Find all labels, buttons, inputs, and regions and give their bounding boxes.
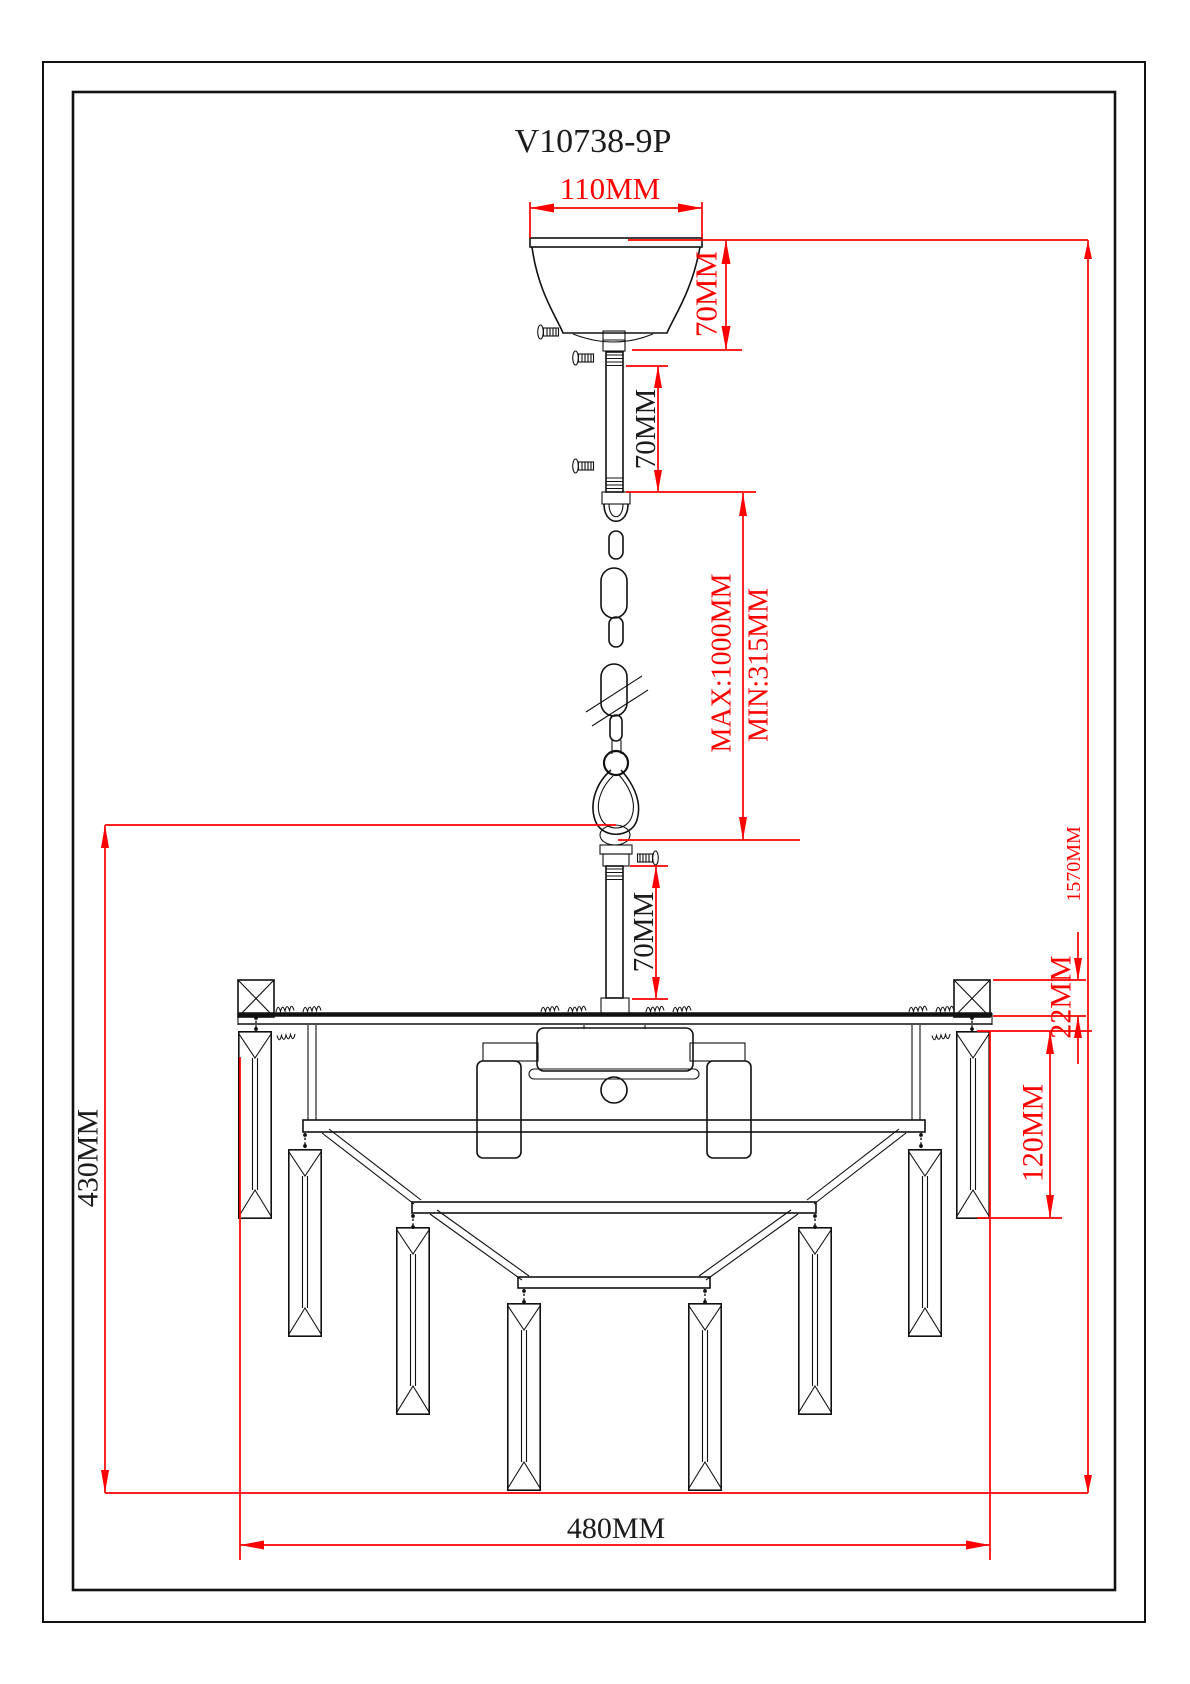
crystal-prism (957, 1032, 989, 1218)
crystal-cube-bead (238, 980, 274, 1017)
screw-icon (638, 851, 659, 865)
dim-canopy-width: 110MM (530, 171, 702, 238)
center-body-box (537, 1028, 693, 1071)
inner-border (73, 92, 1115, 1590)
canopy-neck (603, 331, 625, 351)
chain-link (610, 715, 622, 741)
canopy-bottom-arc (573, 334, 653, 342)
crystal-prism (289, 1150, 321, 1336)
chandelier-dimension-diagram: V10738-9P (0, 0, 1190, 1684)
socket-cap (483, 1043, 538, 1061)
screw-icon (573, 351, 594, 365)
tier-2-ring (303, 1120, 925, 1132)
crystal-prism (799, 1228, 831, 1414)
dim-chain-length: MAX:1000MM MIN:315MM (707, 493, 775, 840)
dim-label-bead-height: 22MM (1045, 955, 1078, 1038)
screw-icon (573, 459, 594, 473)
chain-link (609, 617, 623, 647)
bead-connector (919, 1133, 923, 1148)
lamp-assembly (477, 1028, 751, 1158)
crystal-prism (508, 1304, 540, 1490)
chain-link (601, 568, 627, 618)
dim-label-chain-min: MIN:315MM (744, 588, 775, 742)
clip-icon (277, 1034, 295, 1040)
clip-icon (276, 1006, 294, 1012)
hook-ring (604, 751, 628, 775)
dimensions: 110MM 1570MM 70MM 70MM (72, 171, 1093, 1560)
dim-crystal-length: 120MM (977, 1031, 1092, 1218)
tier-3-ring (412, 1202, 816, 1213)
screw-icon (538, 325, 559, 339)
crystal-prism (239, 1032, 271, 1218)
dim-body-width: 480MM (240, 1032, 990, 1560)
lamp-socket-tube (477, 1061, 521, 1158)
chain-link (601, 664, 627, 716)
upper-pipe (606, 352, 623, 492)
hook (593, 751, 639, 845)
clip-icon (932, 1034, 950, 1040)
socket-cap (690, 1043, 745, 1061)
technical-drawing-page: V10738-9P (0, 0, 1190, 1684)
dim-body-height: 430MM (72, 825, 110, 1493)
dim-label-canopy-width: 110MM (560, 171, 660, 206)
crystal-prism (689, 1304, 721, 1490)
diagonal-struts (322, 1129, 906, 1280)
chain-link (609, 531, 623, 559)
model-number-title: V10738-9P (515, 123, 672, 160)
chandelier-body (238, 980, 992, 1490)
outer-border (43, 62, 1145, 1622)
drawing-frame (43, 62, 1145, 1622)
dim-label-total-drop: 1570MM (1063, 826, 1085, 902)
crystal-prism (397, 1228, 429, 1414)
dim-label-canopy-height: 70MM (689, 251, 724, 337)
crystal-cube-bead (954, 980, 990, 1017)
dim-label-body-height: 430MM (72, 1109, 105, 1207)
lamp-socket-tube (707, 1061, 751, 1158)
dim-lower-pipe: 70MM (628, 866, 668, 999)
clip-icon (568, 1006, 586, 1012)
dim-upper-pipe: 70MM (626, 366, 756, 492)
dim-bead-height: 22MM (993, 932, 1086, 1064)
bead-connector (813, 1214, 817, 1229)
crystal-prism (909, 1150, 941, 1336)
chain-connector (602, 492, 630, 521)
dim-total-drop: 1570MM (628, 240, 1092, 1493)
bead-connector (703, 1289, 707, 1304)
hanger-rods (308, 1025, 920, 1120)
top-ring-plate (238, 1013, 992, 1029)
canopy-bell (532, 247, 700, 333)
dim-label-crystal-length: 120MM (1017, 1084, 1050, 1182)
bulb-socket (601, 1077, 627, 1103)
tier-4-ring (518, 1277, 710, 1288)
bead-connector (411, 1214, 415, 1229)
dim-label-lower-pipe: 70MM (628, 892, 660, 973)
clip-icon (936, 1006, 954, 1012)
clip-icon (646, 1006, 664, 1012)
hanging-chain (586, 531, 648, 754)
clip-icon (673, 1006, 691, 1012)
clip-icon (909, 1006, 927, 1012)
clip-icon (303, 1006, 321, 1012)
bead-connector (303, 1133, 307, 1148)
dim-label-chain-max: MAX:1000MM (707, 573, 738, 752)
chain-break-mark (586, 676, 648, 726)
dim-label-body-width: 480MM (567, 1512, 665, 1545)
clip-icon (541, 1006, 559, 1012)
bead-connector (522, 1289, 526, 1304)
dim-label-upper-pipe: 70MM (630, 389, 662, 470)
